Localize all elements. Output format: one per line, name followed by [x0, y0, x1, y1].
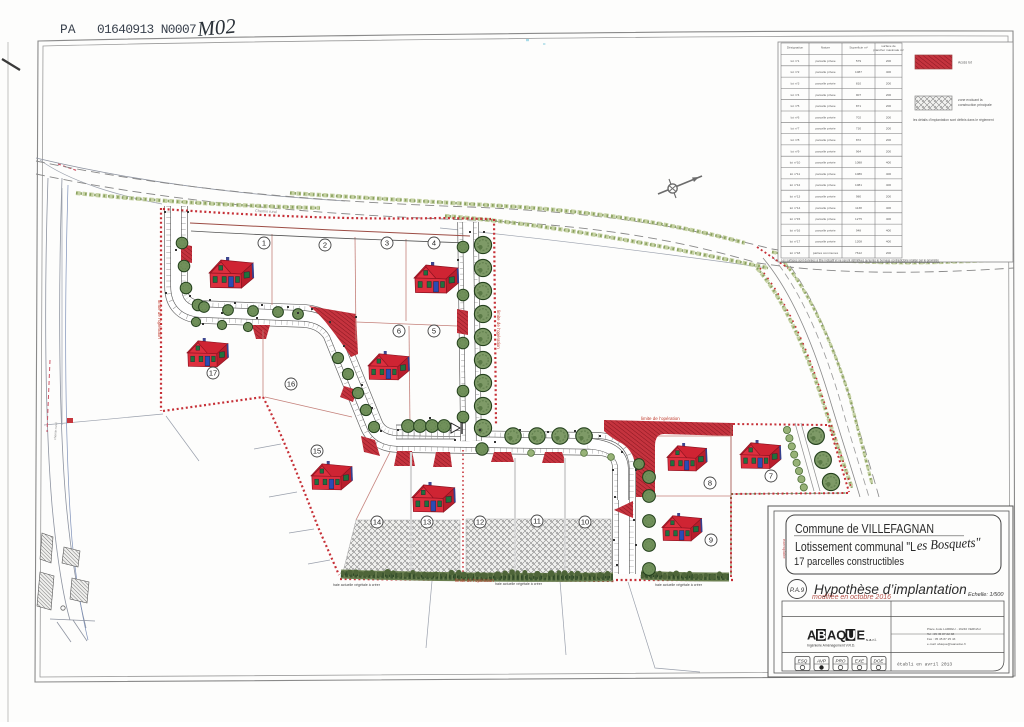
svg-text:1: 1	[262, 239, 266, 248]
svg-text:871: 871	[856, 104, 861, 108]
svg-text:lot n°6: lot n°6	[791, 115, 800, 119]
svg-text:8: 8	[708, 479, 712, 488]
svg-text:limite de l’opération: limite de l’opération	[496, 310, 501, 349]
svg-text:AQ: AQ	[827, 628, 846, 643]
svg-text:200: 200	[886, 138, 891, 142]
svg-text:14: 14	[373, 518, 381, 527]
svg-text:parcelle privée: parcelle privée	[815, 240, 835, 244]
svg-text:200: 200	[886, 59, 891, 63]
svg-text:400: 400	[886, 206, 891, 210]
svg-text:200: 200	[886, 93, 891, 97]
svg-text:5: 5	[432, 327, 436, 336]
svg-text:1208: 1208	[855, 240, 862, 244]
svg-text:lot n°14: lot n°14	[790, 206, 801, 210]
svg-text:haie actuelle végétale à créer: haie actuelle végétale à créer	[333, 583, 381, 587]
svg-text:6: 6	[397, 327, 401, 336]
svg-text:lot n°9: lot n°9	[791, 149, 800, 153]
svg-text:lot n°15: lot n°15	[790, 217, 801, 221]
svg-text:4: 4	[432, 239, 436, 248]
svg-text:AVP: AVP	[816, 659, 827, 664]
svg-text:EXE: EXE	[855, 659, 865, 664]
svg-text:200: 200	[886, 104, 891, 108]
svg-text:17 parcelles constructibles: 17 parcelles constructibles	[794, 556, 904, 568]
svg-text:parcelle privée: parcelle privée	[815, 104, 835, 108]
svg-text:Nature: Nature	[821, 46, 831, 50]
svg-text:200: 200	[886, 149, 891, 153]
svg-text:lot n°18: lot n°18	[790, 251, 801, 255]
svg-text:lot n°2: lot n°2	[791, 70, 800, 74]
svg-text:730: 730	[856, 127, 861, 131]
svg-text:964: 964	[856, 149, 861, 153]
svg-text:lot n°3: lot n°3	[791, 82, 800, 86]
svg-text:16: 16	[287, 380, 295, 389]
svg-text:lot n°1: lot n°1	[791, 59, 800, 63]
svg-text:1086: 1086	[855, 172, 862, 176]
svg-text:PA: PA	[60, 22, 76, 37]
svg-text:200: 200	[886, 82, 891, 86]
svg-text:200: 200	[886, 115, 891, 119]
svg-text:Place Jude LARREU - 16240 VERN: Place Jude LARREU - 16240 VERNAU	[927, 627, 981, 631]
svg-text:1087: 1087	[855, 70, 862, 74]
svg-text:3: 3	[385, 239, 389, 248]
svg-text:10: 10	[581, 518, 589, 527]
svg-text:lot n°5: lot n°5	[791, 104, 800, 108]
svg-text:limite de l’opération: limite de l’opération	[455, 578, 494, 583]
svg-text:400: 400	[886, 161, 891, 165]
svg-text:1138: 1138	[855, 206, 862, 210]
svg-text:Commune de VILLEFAGNAN: Commune de VILLEFAGNAN	[795, 522, 934, 536]
svg-text:parcelle privée: parcelle privée	[815, 172, 835, 176]
svg-text:B: B	[817, 628, 826, 643]
svg-text:11: 11	[533, 517, 541, 526]
svg-text:1088: 1088	[855, 161, 862, 165]
svg-text:400: 400	[886, 228, 891, 232]
svg-text:Fax : 05 45 87 25 43: Fax : 05 45 87 25 43	[927, 637, 956, 641]
svg-text:200: 200	[886, 195, 891, 199]
svg-text:P.A.9: P.A.9	[790, 587, 805, 594]
svg-text:lot n°7: lot n°7	[791, 127, 800, 131]
svg-text:parcelle privée: parcelle privée	[815, 161, 835, 165]
svg-text:limite de l’opération: limite de l’opération	[641, 416, 680, 421]
svg-text:7: 7	[769, 472, 773, 481]
svg-text:plancher maximale m²: plancher maximale m²	[873, 48, 903, 52]
svg-text:400: 400	[886, 240, 891, 244]
svg-text:907: 907	[856, 93, 861, 97]
svg-text:haie actuelle végétale à créer: haie actuelle végétale à créer	[495, 582, 543, 586]
svg-text:lot n°17: lot n°17	[790, 240, 801, 244]
svg-text:M02: M02	[195, 14, 237, 41]
svg-text:parcelle privée: parcelle privée	[815, 195, 835, 199]
svg-text:lot n°16: lot n°16	[790, 228, 801, 232]
svg-text:modifiée en octobre 2016: modifiée en octobre 2016	[812, 594, 891, 601]
svg-text:établi en avril 2013: établi en avril 2013	[897, 662, 952, 668]
svg-text:parcelle privée: parcelle privée	[815, 93, 835, 97]
svg-text:01640913 N0007: 01640913 N0007	[97, 22, 196, 37]
svg-text:400: 400	[886, 183, 891, 187]
svg-text:parcelle privée: parcelle privée	[815, 127, 835, 131]
svg-text:Désignation: Désignation	[787, 46, 804, 50]
svg-text:Echelle: 1/500: Echelle: 1/500	[968, 592, 1004, 598]
svg-text:e-mail: abaque@wanadoo.fr: e-mail: abaque@wanadoo.fr	[927, 642, 966, 646]
svg-text:Superficie m²: Superficie m²	[849, 46, 867, 50]
svg-text:parcelle privée: parcelle privée	[815, 70, 835, 74]
svg-text:1275: 1275	[855, 217, 862, 221]
svg-text:parcelle privée: parcelle privée	[815, 217, 835, 221]
svg-text:200: 200	[886, 251, 891, 255]
svg-text:Ingénierie Aménagement V.R.D.: Ingénierie Aménagement V.R.D.	[807, 644, 855, 648]
svg-text:lot n°12: lot n°12	[790, 183, 801, 187]
svg-text:lot n°4: lot n°4	[791, 93, 800, 97]
svg-text:parcelle privée: parcelle privée	[815, 115, 835, 119]
svg-text:ESQ: ESQ	[798, 659, 808, 664]
svg-text:E: E	[857, 628, 866, 643]
svg-text:200: 200	[886, 127, 891, 131]
svg-text:980: 980	[856, 195, 861, 199]
svg-text:parcelle privée: parcelle privée	[815, 149, 835, 153]
svg-text:400: 400	[886, 217, 891, 221]
svg-text:s.a.r.l.: s.a.r.l.	[866, 637, 877, 642]
svg-text:400: 400	[886, 172, 891, 176]
svg-text:17: 17	[209, 369, 217, 378]
svg-text:7612: 7612	[855, 251, 862, 255]
svg-text:872: 872	[856, 138, 861, 142]
svg-text:PRO: PRO	[836, 659, 846, 664]
svg-text:948: 948	[856, 228, 861, 232]
svg-text:lot n°10: lot n°10	[790, 161, 801, 165]
svg-text:Lotissement communal "L: Lotissement communal "L	[795, 540, 916, 554]
svg-text:1081: 1081	[855, 183, 862, 187]
svg-text:9: 9	[709, 536, 713, 545]
svg-text:810: 810	[856, 82, 861, 86]
svg-text:400: 400	[886, 70, 891, 74]
svg-text:15: 15	[313, 447, 321, 456]
svg-text:haie actuelle végétale à créer: haie actuelle végétale à créer	[655, 583, 703, 587]
svg-text:parcelle privée: parcelle privée	[815, 82, 835, 86]
svg-text:702: 702	[856, 115, 861, 119]
svg-text:Tel : 05 45 87 22 38: Tel : 05 45 87 22 38	[927, 632, 954, 636]
svg-text:13: 13	[423, 518, 431, 527]
svg-text:zone excluant la: zone excluant la	[958, 98, 983, 102]
svg-text:Accès lot: Accès lot	[958, 61, 972, 65]
svg-text:parcelle privée: parcelle privée	[815, 183, 835, 187]
svg-text:lot n°11: lot n°11	[790, 172, 801, 176]
svg-text:parcelle privée: parcelle privée	[815, 228, 835, 232]
svg-text:12: 12	[476, 518, 484, 527]
svg-text:579: 579	[856, 59, 861, 63]
svg-text:parcelle privée: parcelle privée	[815, 138, 835, 142]
svg-text:lot n°8: lot n°8	[791, 138, 800, 142]
svg-text:A: A	[807, 628, 817, 643]
svg-text:limite de l’opération: limite de l’opération	[157, 300, 162, 339]
svg-text:parties communes: parties communes	[813, 251, 839, 255]
svg-text:les détails d’implantation son: les détails d’implantation sont définis …	[913, 118, 994, 122]
svg-text:U: U	[847, 628, 856, 643]
svg-text:lot n°13: lot n°13	[790, 195, 801, 199]
svg-text:parcelle privée: parcelle privée	[815, 206, 835, 210]
svg-text:2: 2	[323, 241, 327, 250]
svg-text:construction principale: construction principale	[958, 103, 992, 107]
svg-text:DOE: DOE	[874, 659, 885, 664]
svg-text:parcelle privée: parcelle privée	[815, 59, 835, 63]
svg-text:Les surfaces sont données à ti: Les surfaces sont données à titre indica…	[781, 259, 939, 263]
